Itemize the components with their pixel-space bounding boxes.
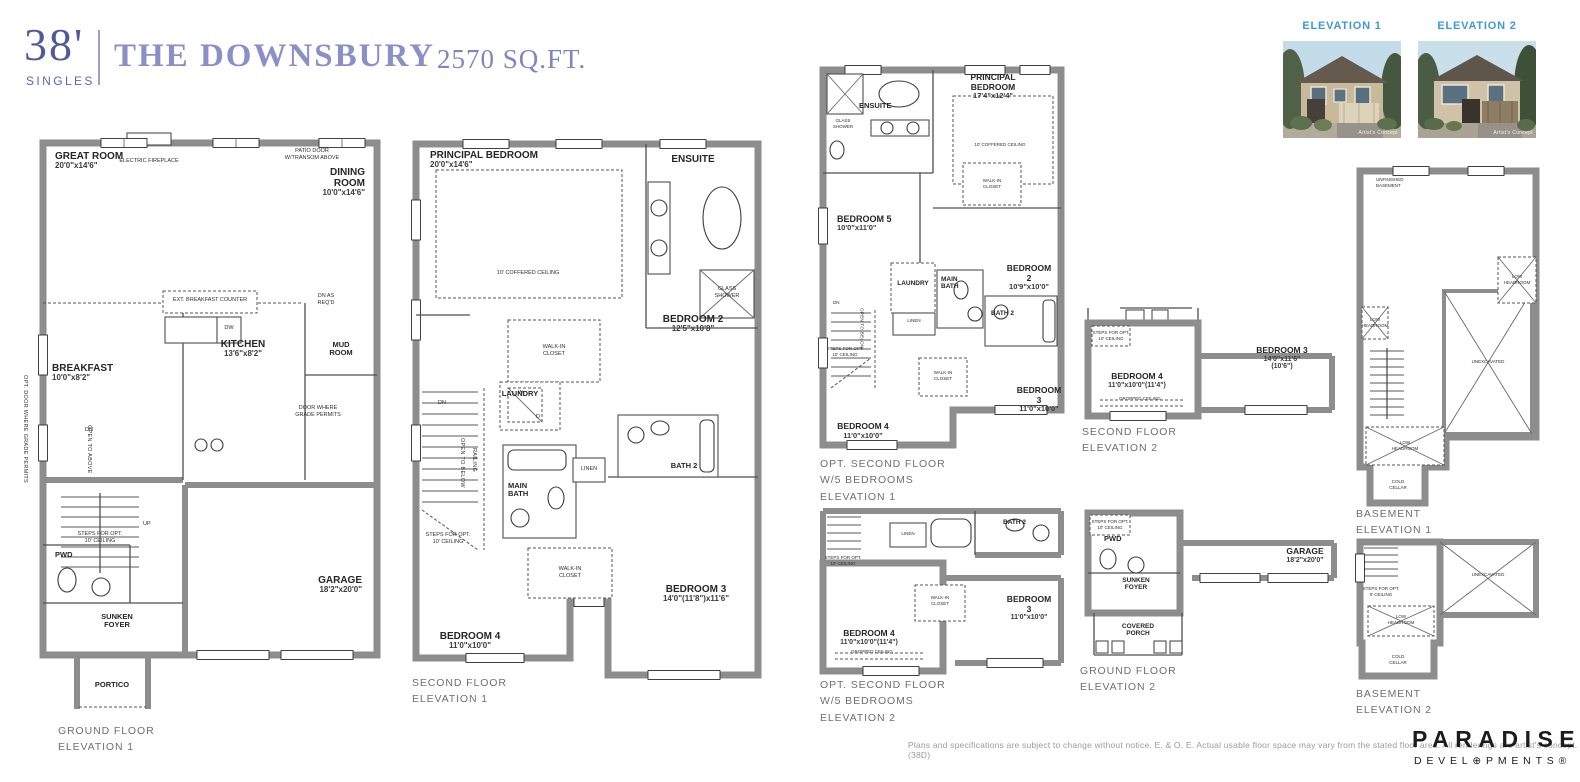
room-label-ensuite: ENSUITE [859,102,892,110]
elevation1-render-art [1283,41,1401,138]
room-label-principal-bedroom: PRINCIPAL BEDROOM17'4"x12'4" [955,73,1032,100]
note-dropped-ceiling: DROPPED CEILING [851,649,893,655]
brand-paradise: PARADISE [1412,726,1580,753]
room-label-bedroom-3: BEDROOM 311'0"x10'0" [1017,386,1061,413]
note-dn-as-reqd: DN AS REQ'D [318,293,335,307]
room-label-bath-2: BATH 2 [671,462,698,470]
room-label-garage: GARAGE18'2"x20'0" [1286,547,1323,564]
note-low-headroom-2: LOW HEADROOM [1362,317,1389,328]
note-walk-in-closet: WALK-IN CLOSET [931,595,950,606]
plan-caption-ground-floor-elevation-2: GROUND FLOOR ELEVATION 2 [1080,663,1177,696]
note-steps-opt-ceiling: STEPS FOR OPT. 9' CEILING [1363,586,1400,597]
room-label-pwd: PWD [1104,535,1122,543]
plan-ground-floor-elevation-2: STEPS FOR OPT. 10' CEILING PWD SUNKEN FO… [1080,503,1342,685]
room-label-laundry: LAUNDRY [897,280,929,287]
plan-opt-second-floor-elevation-1: PRINCIPAL BEDROOM17'4"x12'4" ENSUITE BED… [815,58,1070,503]
note-walk-in-closet-1: WALK-IN CLOSET [543,344,566,358]
note-dw: DW [224,325,233,332]
plan-caption-opt-second-floor-elevation-2: OPT. SECOND FLOOR W/5 BEDROOMS ELEVATION… [820,677,946,726]
header-divider [98,30,100,85]
note-steps-opt-ceiling: STEPS FOR OPT. 10' CEILING [1093,330,1130,341]
plan-basement-elevation-2: UNEXCAVATED STEPS FOR OPT. 9' CEILING LO… [1348,538,1553,713]
note-low-headroom-1: LOW HEADROOM [1504,274,1531,285]
room-label-kitchen: KITCHEN13'6"x8'2" [221,339,265,359]
room-label-bedroom-5: BEDROOM 510'0"x11'0" [837,214,892,232]
note-unexcavated: UNEXCAVATED [1472,359,1505,365]
room-label-bath-2: BATH 2 [991,310,1014,317]
plan-basement-elevation-1-walls [1348,163,1553,541]
note-steps-opt-ceiling: STEPS FOR OPT. 10' CEILING [78,531,123,545]
room-label-main-bath: MAIN BATH [508,482,528,499]
plan-second-floor-elevation-1: PRINCIPAL BEDROOM20'0"x14'6" ENSUITE BED… [408,130,768,705]
room-label-main-bath: MAIN BATH [941,276,959,291]
room-label-sunken-foyer: SUNKEN FOYER [101,613,133,630]
note-steps-opt-ceiling: STEPS FOR OPT. 10' CEILING [426,532,471,546]
plan-second-floor-elevation-1-walls [408,130,768,705]
note-linen: LINEN [581,466,597,473]
room-label-bedroom-2: BEDROOM 210'9"x10'0" [1007,264,1051,291]
plan-ground-floor-elevation-1: GREAT ROOM20'0"x14'6" DINING ROOM10'0"x1… [35,125,390,775]
artist-concept-credit: Artist's Concept [1358,130,1398,136]
plan-caption-second-floor-elevation-1: SECOND FLOOR ELEVATION 1 [412,675,507,708]
plan-ground-floor-elevation-2-walls [1080,503,1342,685]
note-linen: LINEN [907,318,920,324]
elevation2-label: ELEVATION 2 [1418,20,1536,32]
note-coffered-ceiling: 10' COFFERED CEILING [497,270,559,277]
note-washer: W [518,390,523,397]
note-low-headroom-3: LOW HEADROOM [1392,440,1419,451]
elevation2-render-art [1418,41,1536,138]
plan-caption-second-floor-elevation-2: SECOND FLOOR ELEVATION 2 [1082,424,1177,457]
note-opt-door-where-grade-permits: OPT. DOOR WHERE GRADE PERMITS [21,375,28,483]
note-open-to-below: OPEN TO BELOW [458,438,465,488]
floorplan-sheet: 38' SINGLES THE DOWNSBURY 2570 SQ.FT. EL… [0,0,1580,782]
note-open-to-below: OPEN TO BELOW [859,308,865,350]
note-electric-fireplace: ELECTRIC FIREPLACE [119,158,178,165]
elevation1-label: ELEVATION 1 [1283,20,1401,32]
room-label-bedroom-4: BEDROOM 411'0"x10'0"(11'4") [840,629,898,646]
room-label-bedroom-2: BEDROOM 212'5"x10'8" [663,314,724,334]
room-label-mud-room: MUD ROOM [329,341,352,358]
note-door-where-grade-permits: DOOR WHERE GRADE PERMITS [295,405,341,419]
room-label-bedroom-3: BEDROOM 314'0"(11'8")x11'6" [663,584,729,604]
note-walk-in-closet-2: WALK-IN CLOSET [934,370,953,381]
note-walk-in-closet-2: WALK-IN CLOSET [559,566,582,580]
note-ext-breakfast-counter: EXT. BREAKFAST COUNTER [173,297,247,304]
room-label-bedroom-4: BEDROOM 411'0"x10'0"(11'4") [1108,372,1166,389]
note-unexcavated: UNEXCAVATED [1472,572,1505,578]
artist-concept-credit: Artist's Concept [1493,130,1533,136]
note-unfinished-basement: UNFINISHED BASEMENT [1376,177,1404,188]
note-patio-door: PATIO DOOR W/TRANSOM ABOVE [285,148,339,162]
room-label-dining-room: DINING ROOM10'0"x14'6" [322,167,365,198]
elevation2-render: Artist's Concept [1418,41,1536,138]
lot-width: 38' [24,22,84,68]
note-steps-opt-ceiling: STEPS FOR OPT. 10' CEILING [1092,519,1129,530]
room-label-covered-porch: COVERED PORCH [1122,623,1154,638]
note-steps-opt-ceiling: STEPS FOR OPT. 10' CEILING [825,555,862,566]
plan-caption-basement-elevation-2: BASEMENT ELEVATION 2 [1356,686,1432,719]
room-label-breakfast: BREAKFAST10'0"x8'2" [52,363,113,383]
note-steps-opt-ceiling: STEPS FOR OPT. 10' CEILING [827,346,864,357]
lot-type: SINGLES [26,74,95,88]
note-low-headroom: LOW HEADROOM [1388,614,1415,625]
room-label-portico: PORTICO [95,681,129,689]
note-railing: RAILING [470,448,477,472]
room-label-bedroom-4: BEDROOM 411'0"x10'0" [440,631,501,651]
note-dryer: D [536,414,540,421]
note-coffered-ceiling: 10' COFFERED CEILING [974,142,1025,148]
note-dn: DN [833,300,840,306]
elevation1-render: Artist's Concept [1283,41,1401,138]
plan-basement-elevation-1: UNFINISHED BASEMENT LOW HEADROOM LOW HEA… [1348,163,1553,541]
note-up: UP [143,521,151,528]
note-cold-cellar: COLD CELLAR [1389,479,1407,490]
plan-caption-opt-second-floor-elevation-1: OPT. SECOND FLOOR W/5 BEDROOMS ELEVATION… [820,456,946,505]
room-label-pwd: PWD [55,551,73,559]
model-name: THE DOWNSBURY [114,40,435,73]
room-label-bath-2: BATH 2 [1003,519,1026,526]
note-dn: DN [85,427,93,434]
note-glass-shower: GLASS SHOWER [715,286,740,300]
room-label-great-room: GREAT ROOM20'0"x14'6" [55,151,123,171]
room-label-ensuite: ENSUITE [671,154,714,165]
room-label-sunken-foyer: SUNKEN FOYER [1122,577,1149,592]
note-glass-shower: GLASS SHOWER [833,118,853,129]
note-cold-cellar: COLD CELLAR [1389,654,1407,665]
room-label-bedroom-3: BEDROOM 311'0"x10'0" [1007,595,1051,622]
room-label-bedroom-4: BEDROOM 411'0"x10'0" [837,422,888,440]
plan-caption-ground-floor-elevation-1: GROUND FLOOR ELEVATION 1 [58,723,155,756]
note-walk-in-closet-1: WALK-IN CLOSET [983,178,1002,189]
note-dn: DN [438,400,446,407]
note-linen: LINEN [901,531,914,537]
room-label-bedroom-3: BEDROOM 314'0"x11'6"(10'6") [1254,346,1310,371]
brand-developments: DEVEL⊕PMENTS® [1414,755,1571,767]
note-dropped-ceiling: DROPPED CEILING [1119,396,1161,402]
plan-opt-second-floor-elevation-2: LINEN BATH 2 STEPS FOR OPT. 10' CEILING … [815,503,1070,708]
plan-caption-basement-elevation-1: BASEMENT ELEVATION 1 [1356,506,1432,539]
plan-second-floor-elevation-2: STEPS FOR OPT. 10' CEILING BEDROOM 411'0… [1080,298,1338,453]
room-label-garage: GARAGE18'2"x20'0" [318,575,362,595]
model-sqft: 2570 SQ.FT. [437,46,586,73]
room-label-principal-bedroom: PRINCIPAL BEDROOM20'0"x14'6" [430,150,538,170]
